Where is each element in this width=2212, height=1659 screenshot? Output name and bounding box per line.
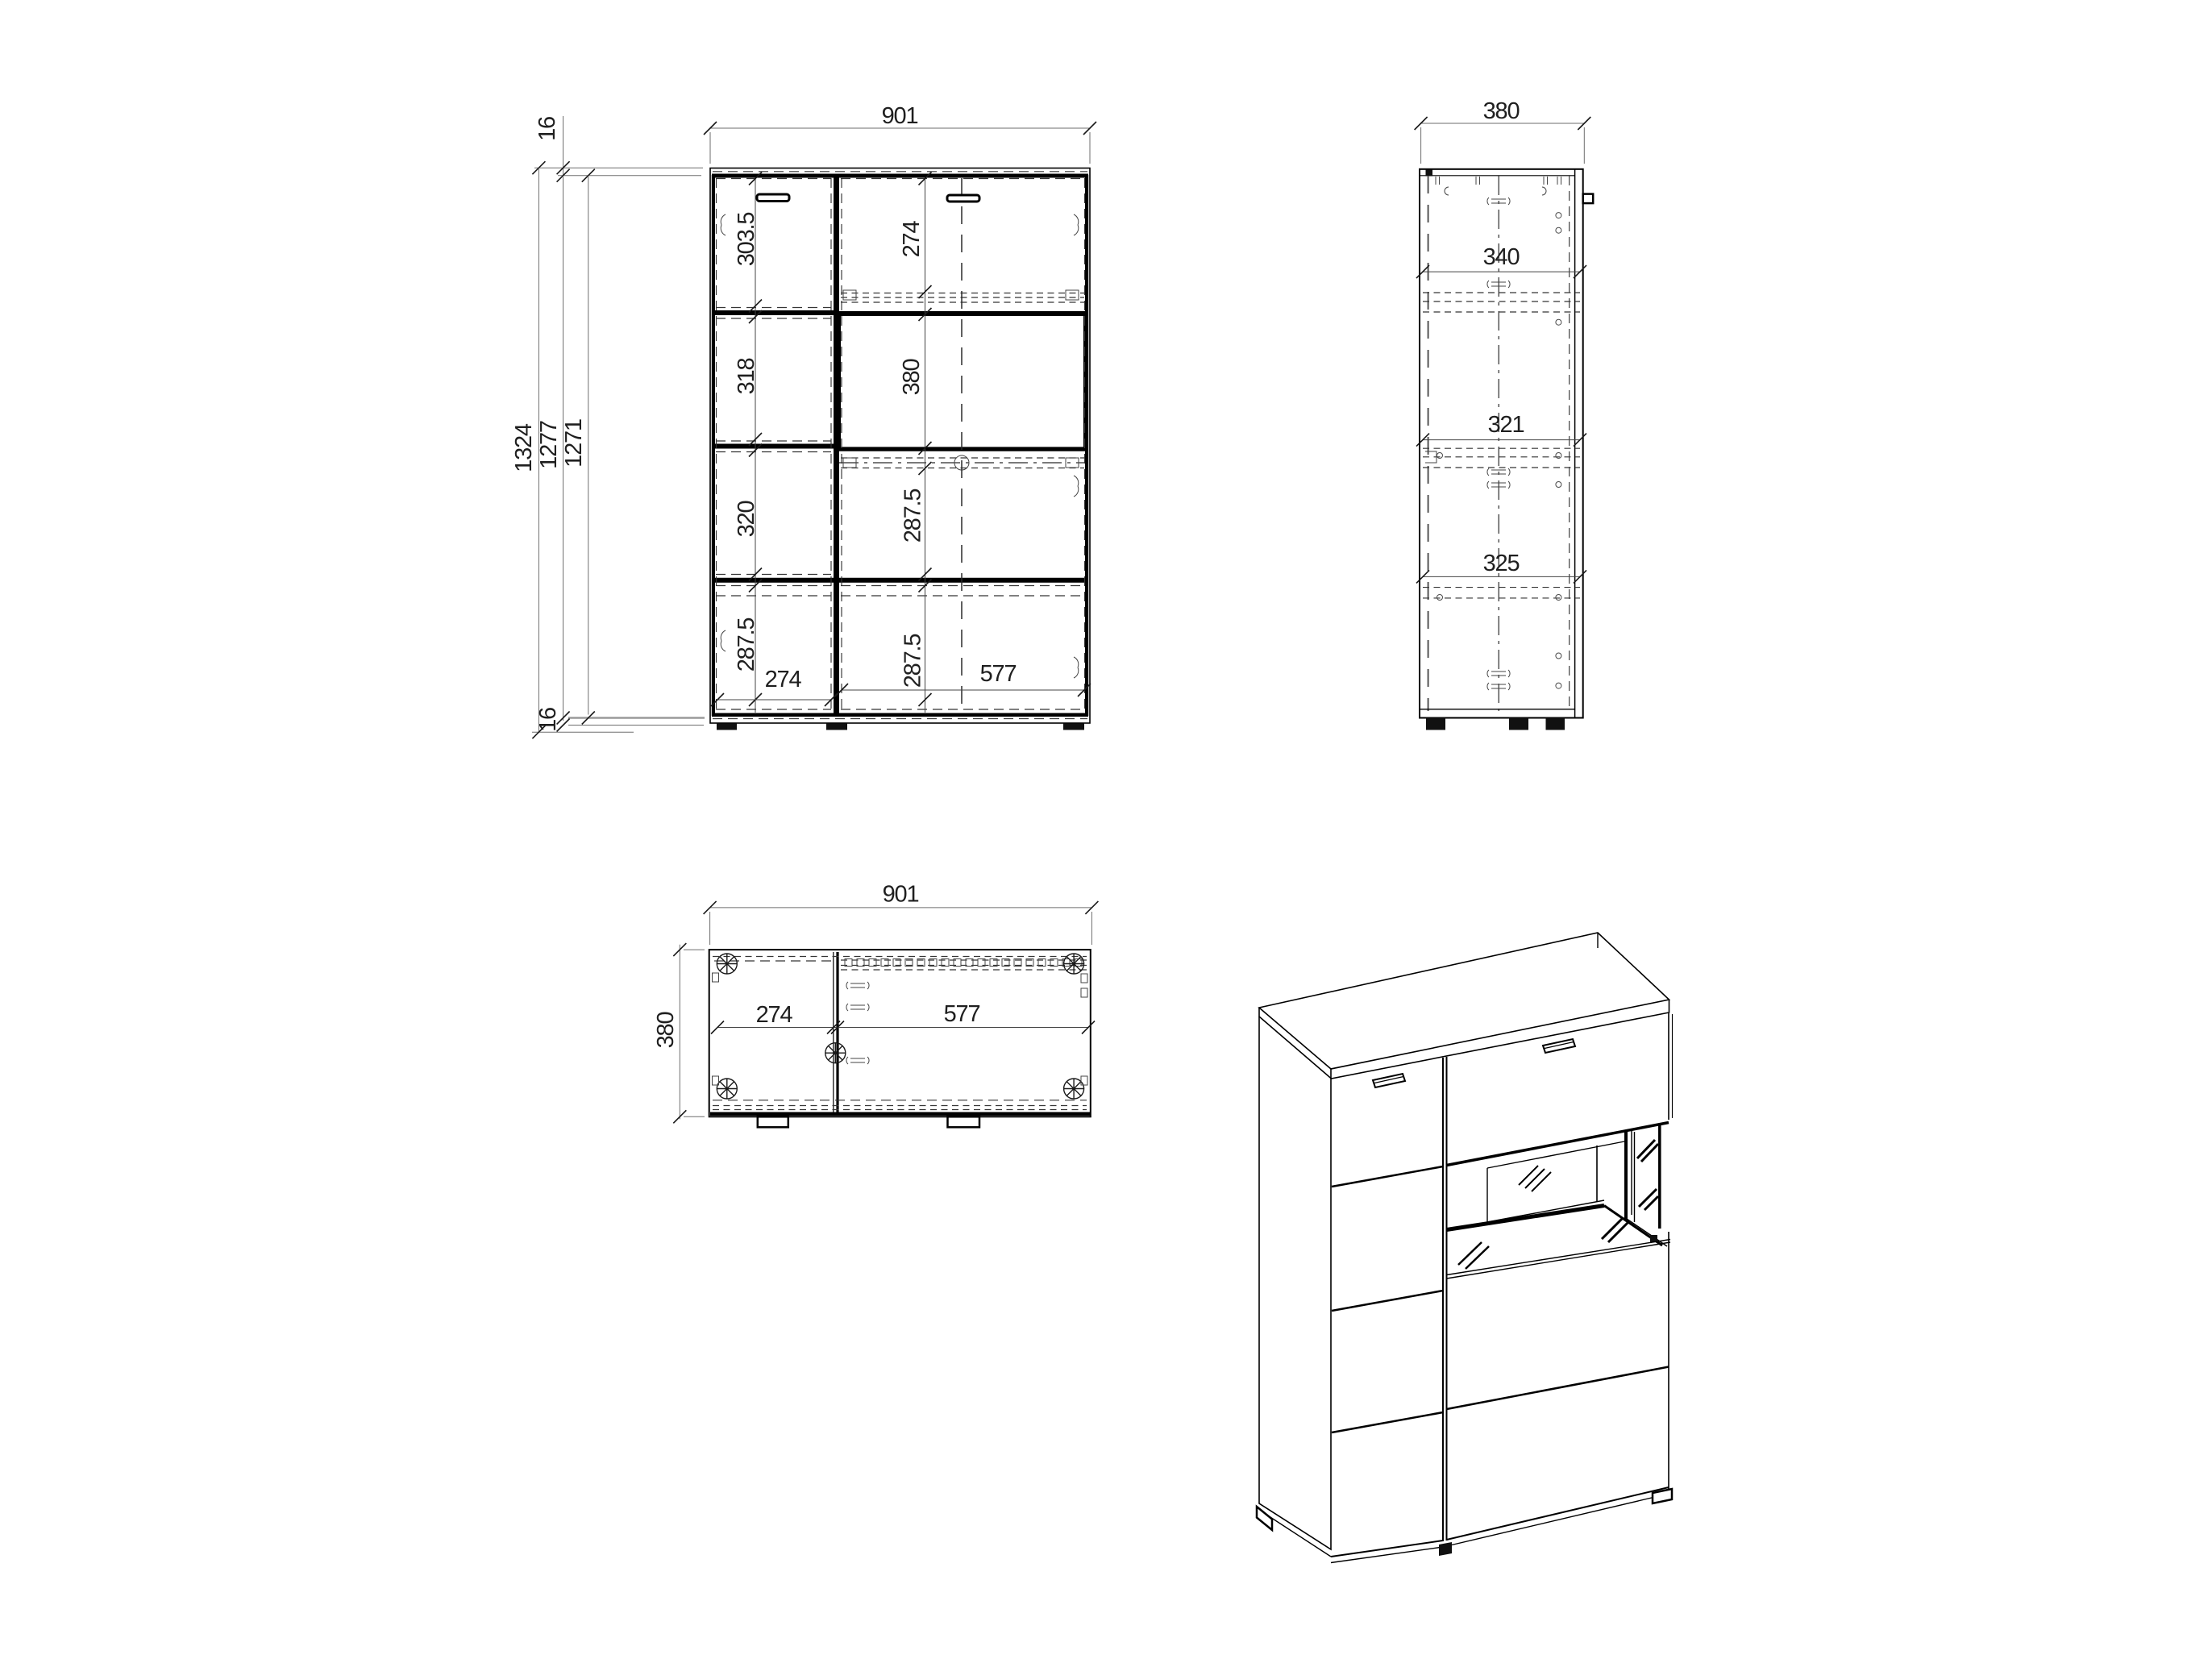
svg-text:901: 901: [882, 103, 918, 129]
svg-text:274: 274: [899, 221, 925, 258]
svg-text:380: 380: [653, 1012, 679, 1049]
svg-text:340: 340: [1483, 244, 1520, 270]
svg-text:577: 577: [980, 661, 1017, 687]
svg-text:1271: 1271: [561, 419, 587, 468]
svg-text:287.5: 287.5: [900, 489, 926, 543]
svg-text:303.5: 303.5: [734, 213, 759, 267]
svg-text:901: 901: [883, 882, 919, 908]
svg-text:16: 16: [535, 708, 561, 732]
svg-text:325: 325: [1483, 551, 1520, 576]
svg-text:287.5: 287.5: [900, 634, 926, 688]
svg-text:16: 16: [534, 117, 560, 141]
svg-text:321: 321: [1488, 412, 1524, 438]
svg-text:287.5: 287.5: [734, 618, 759, 672]
svg-text:320: 320: [734, 501, 759, 538]
svg-text:380: 380: [1483, 98, 1520, 124]
svg-text:274: 274: [765, 667, 802, 692]
svg-text:274: 274: [756, 1002, 793, 1028]
svg-text:318: 318: [734, 359, 759, 395]
svg-text:1277: 1277: [536, 421, 562, 469]
svg-text:577: 577: [944, 1001, 980, 1027]
svg-text:380: 380: [899, 360, 925, 396]
svg-text:1324: 1324: [511, 423, 537, 472]
